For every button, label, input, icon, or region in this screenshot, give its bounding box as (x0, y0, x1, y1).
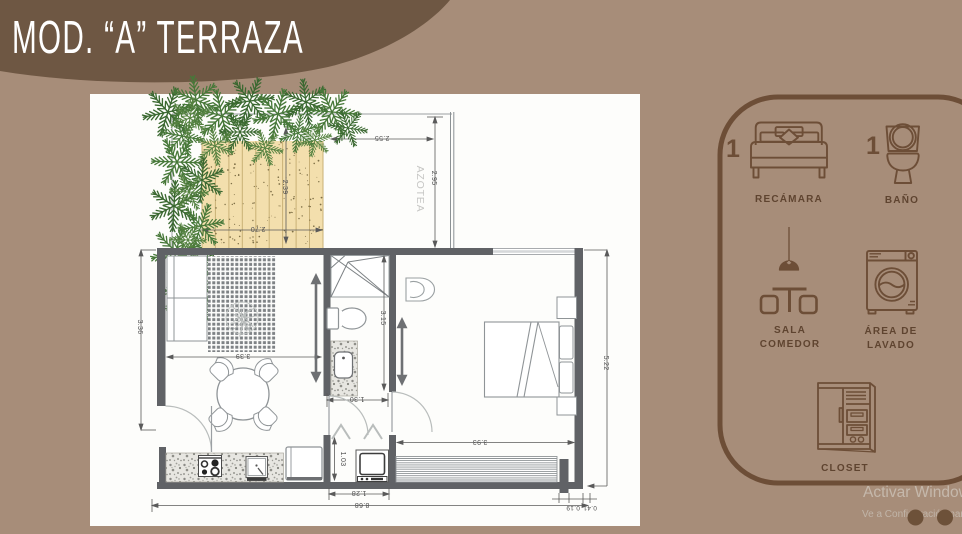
svg-text:0.19: 0.19 (566, 504, 580, 511)
svg-text:AZOTEA: AZOTEA (414, 166, 426, 213)
svg-text:1: 1 (866, 132, 880, 160)
svg-text:2.95: 2.95 (430, 171, 437, 186)
svg-text:ÁREA DE: ÁREA DE (864, 324, 917, 337)
svg-text:Activar Windows: Activar Windows (863, 484, 962, 501)
svg-text:SALA: SALA (774, 325, 806, 336)
svg-text:BAÑO: BAÑO (885, 193, 919, 206)
svg-text:3.15: 3.15 (379, 311, 386, 326)
svg-text:1.28: 1.28 (352, 489, 367, 496)
svg-text:COMEDOR: COMEDOR (760, 339, 821, 350)
svg-text:3.93: 3.93 (473, 438, 488, 445)
svg-text:3.39: 3.39 (236, 352, 251, 359)
svg-text:2.55: 2.55 (375, 134, 390, 141)
svg-text:1.03: 1.03 (339, 452, 346, 467)
svg-text:2.39: 2.39 (281, 180, 288, 195)
svg-text:MOD. “A” TERRAZA: MOD. “A” TERRAZA (12, 13, 304, 64)
svg-text:5.22: 5.22 (602, 356, 609, 371)
svg-text:1: 1 (726, 135, 740, 163)
svg-text:RECÁMARA: RECÁMARA (755, 192, 823, 205)
svg-text:3.36: 3.36 (136, 320, 143, 335)
svg-text:8.68: 8.68 (355, 501, 370, 508)
svg-text:CLOSET: CLOSET (821, 463, 869, 474)
svg-text:2.70: 2.70 (251, 225, 266, 232)
svg-text:LAVADO: LAVADO (867, 340, 915, 351)
